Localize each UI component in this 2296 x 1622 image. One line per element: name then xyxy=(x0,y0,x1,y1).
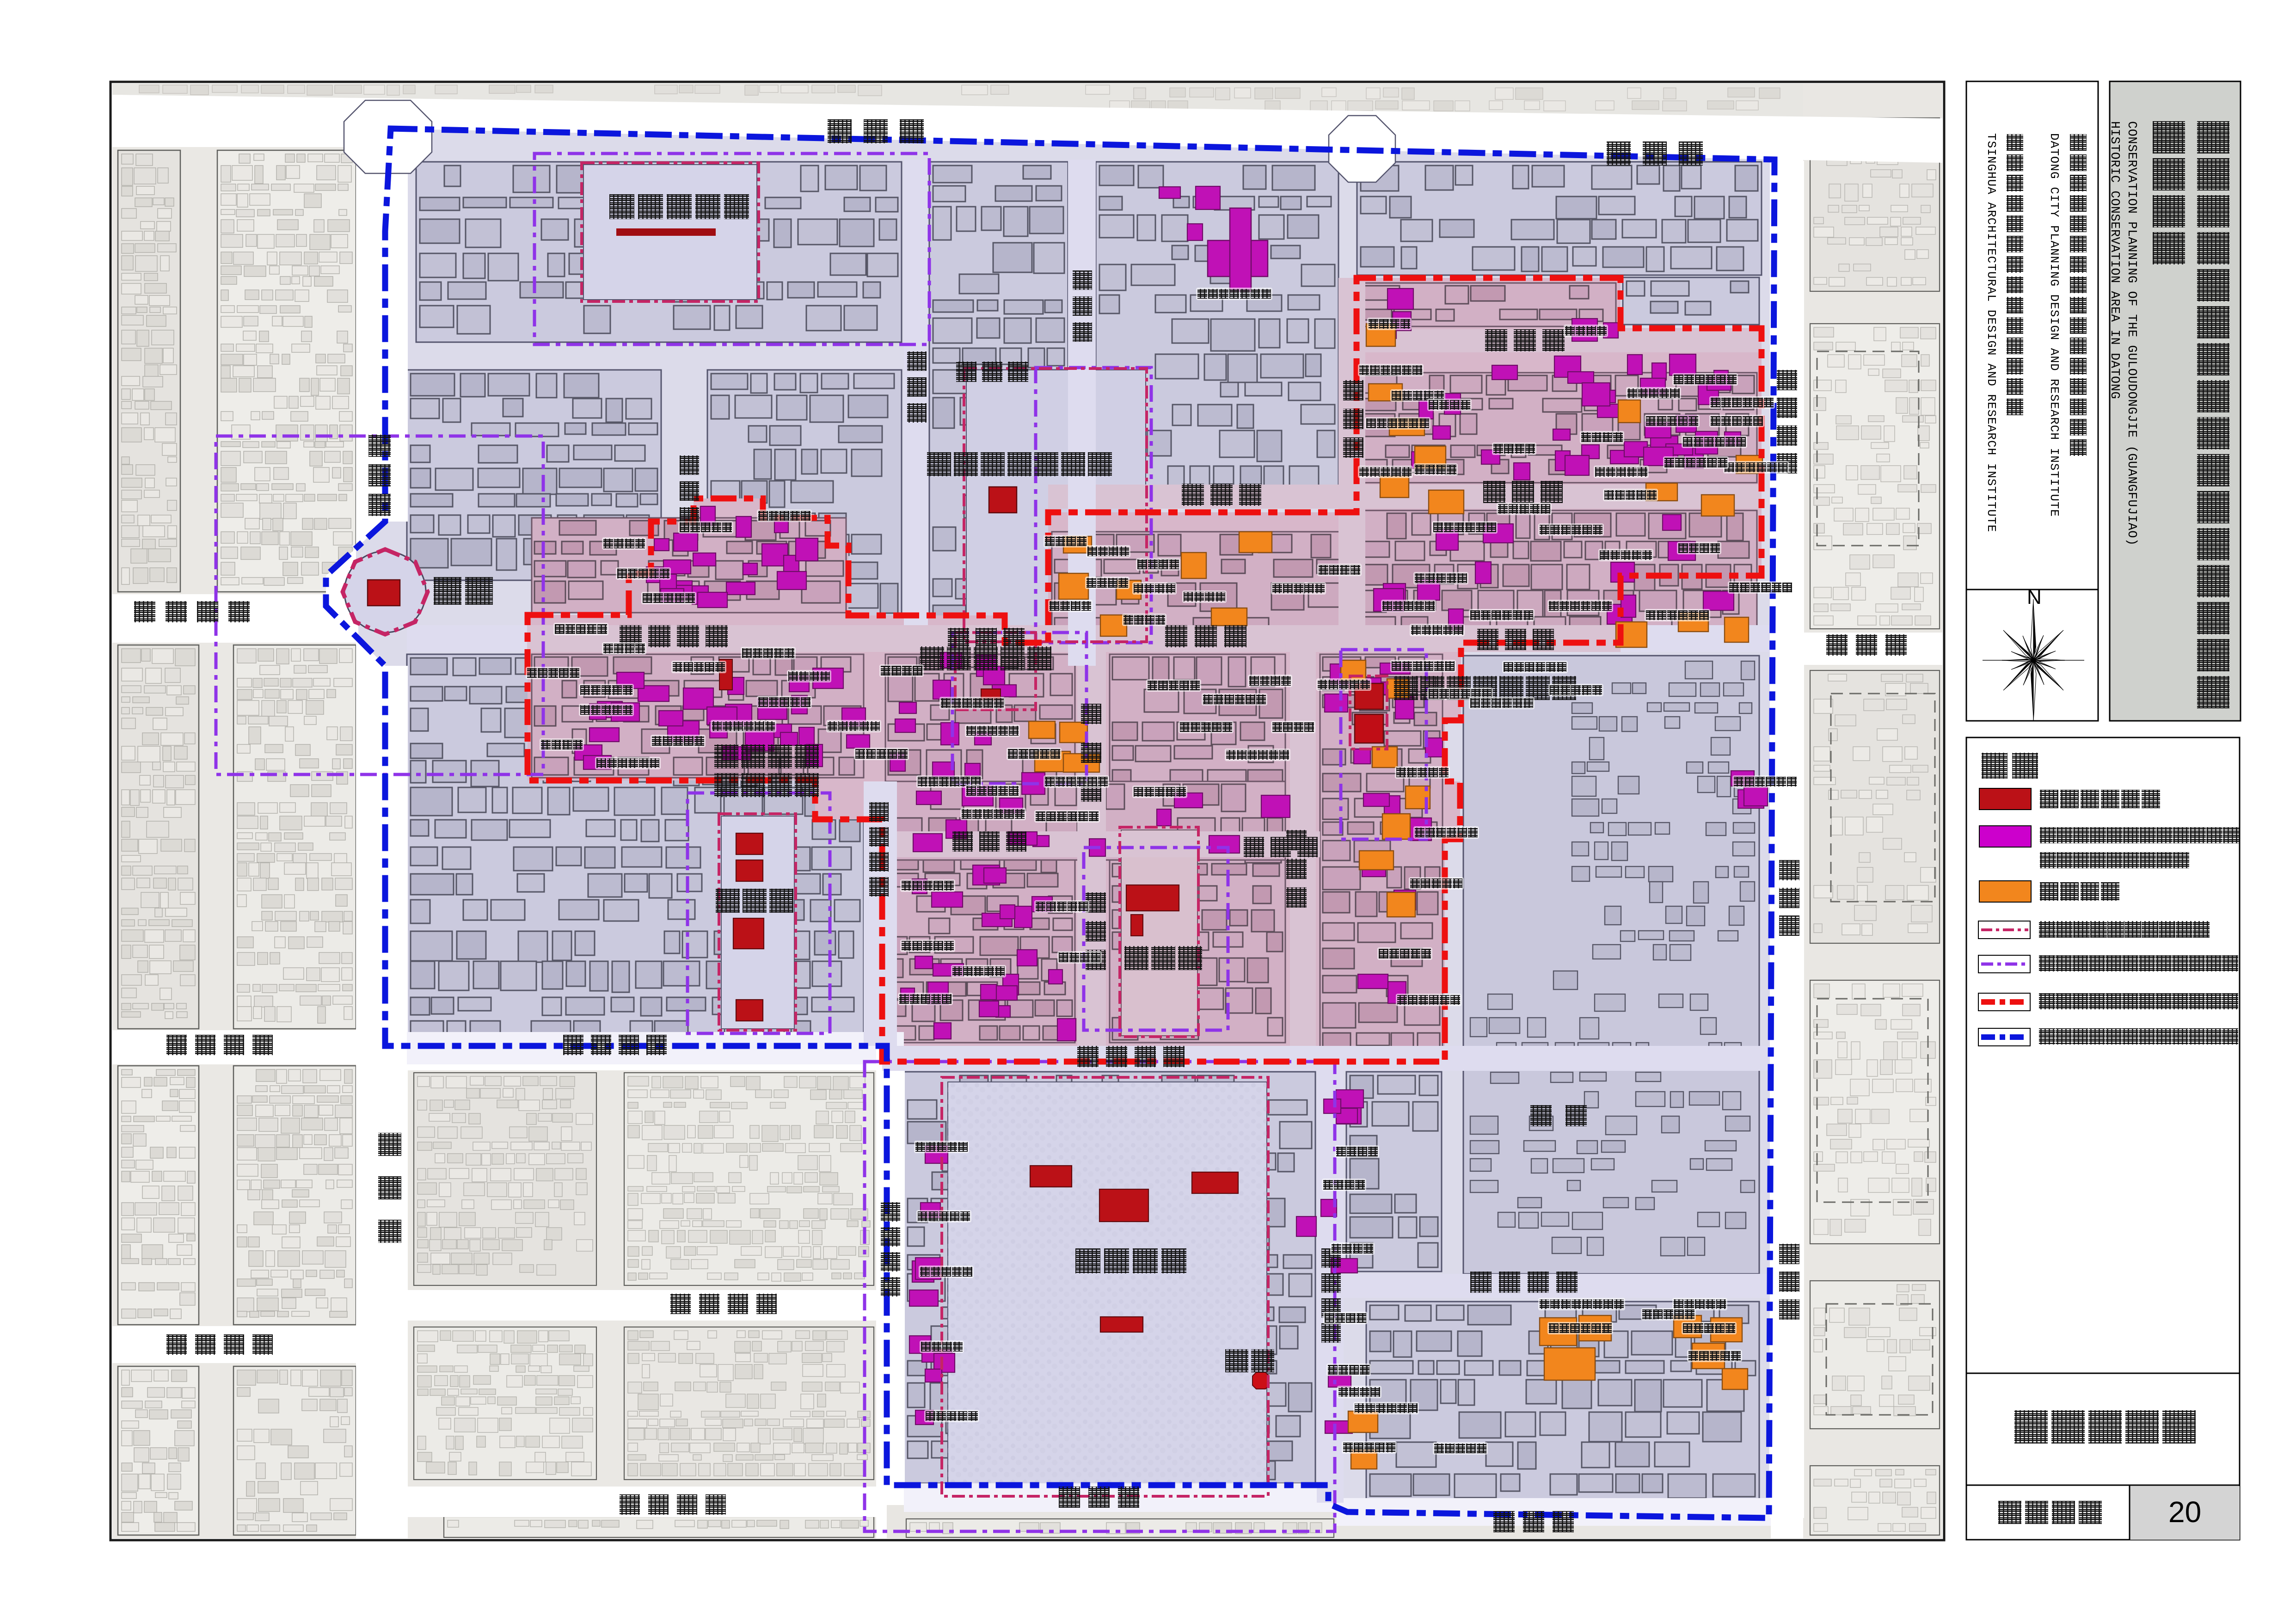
svg-text:20: 20 xyxy=(2168,1495,2201,1529)
svg-text:TSINGHUA ARCHITECTURAL DESIGN: TSINGHUA ARCHITECTURAL DESIGN AND RESEAR… xyxy=(1984,133,1998,532)
svg-text:CONSERVATION PLANNING OF THE: CONSERVATION PLANNING OF THE GULOUDONGJI… xyxy=(2124,121,2138,546)
svg-text:N: N xyxy=(2027,586,2042,608)
svg-text:DATONG CITY PLANNING DESIGN AN: DATONG CITY PLANNING DESIGN AND RESEARCH… xyxy=(2047,133,2061,517)
svg-text:HISTORIC CONSERVATION AREA IN: HISTORIC CONSERVATION AREA IN DATONG xyxy=(2107,121,2121,399)
